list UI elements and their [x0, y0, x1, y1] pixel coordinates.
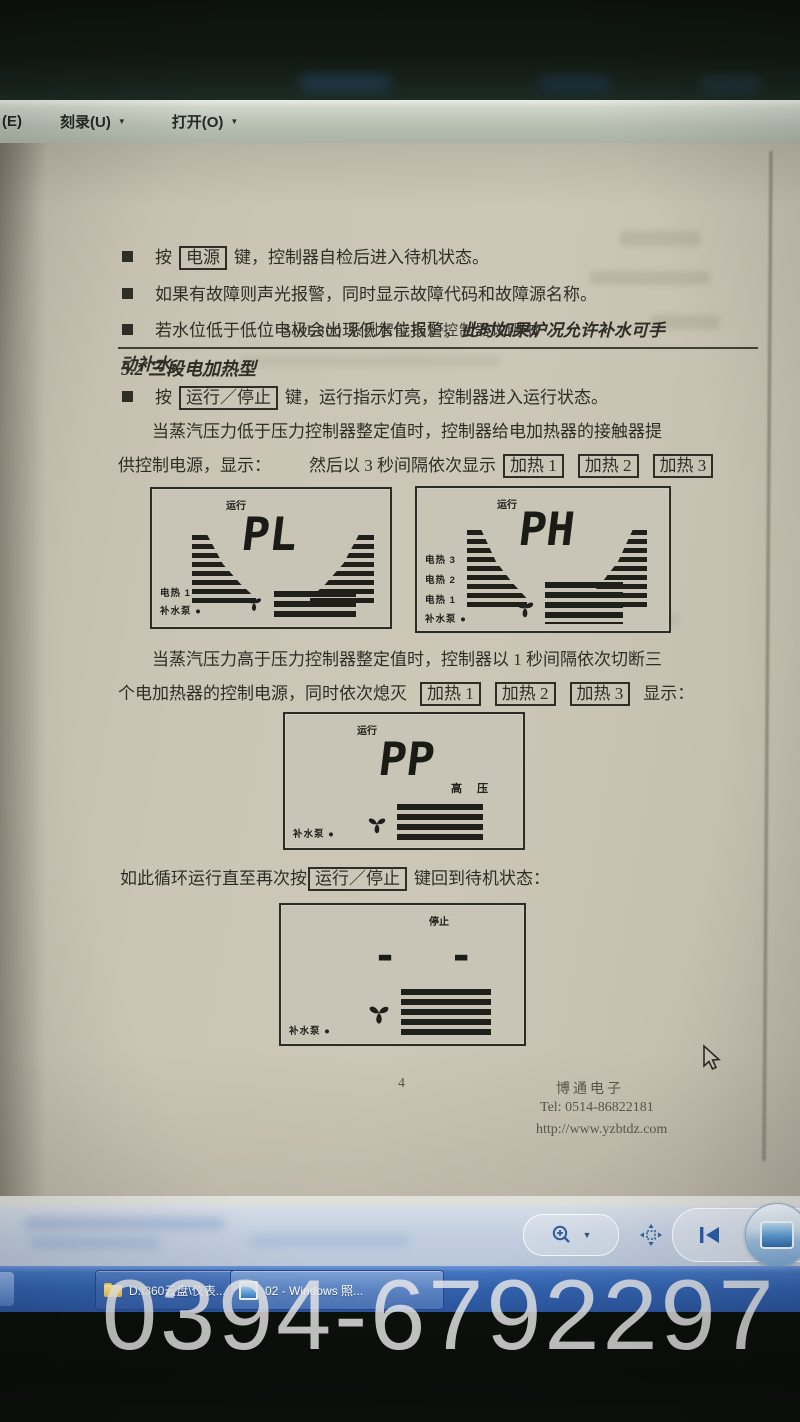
bullet-marker: [122, 324, 133, 335]
footer-url: http://www.yzbtdz.com: [536, 1122, 667, 1138]
fan-icon: [511, 594, 539, 622]
heater-element-icon: [545, 582, 623, 624]
paragraph-text: 显示：: [643, 684, 694, 703]
lcd-display-standby: 停止 - - 补水泵 ●: [279, 903, 526, 1046]
paragraph-text: 然后以 3 秒间隔依次显示: [309, 456, 496, 475]
zoom-control[interactable]: ▼: [523, 1214, 619, 1256]
lcd-value: PH: [516, 502, 578, 556]
heat3-label: 加热 3: [653, 454, 714, 478]
lcd-value: PP: [376, 732, 438, 786]
lcd-value: - -: [373, 933, 487, 979]
lcd-label-feed-pump: 补水泵 ●: [293, 826, 335, 840]
bullet-text: 键，控制器自检后进入待机状态。: [234, 248, 489, 267]
paragraph-text: 个电加热器的控制电源，同时依次熄灭: [118, 684, 407, 703]
bezel-reflection: [700, 76, 760, 92]
lcd-status-label: 运行: [226, 497, 246, 512]
lcd-label-high-pressure: 高 压: [451, 780, 494, 796]
document-page: SML800 系列智能锅炉控制器说明书 5.2 三段电加热型 按电源键，控制器自…: [0, 143, 800, 1196]
bullet-text-emphasis: 此时如果炉况允许补水可手: [461, 321, 665, 340]
watermark-phone-number: 0394-6792297: [102, 1258, 777, 1372]
lcd-status-label: 停止: [429, 913, 449, 928]
paragraph-line: 个电加热器的控制电源，同时依次熄灭加热 1加热 2加热 3显示：: [118, 679, 694, 706]
footer-company: 博通电子: [556, 1078, 624, 1098]
fit-to-window-icon: [639, 1223, 663, 1247]
lcd-display-pl: 运行 PL 电热 1 补水泵 ●: [150, 487, 392, 629]
chevron-down-icon: ▼: [118, 117, 126, 126]
taskbar-edge-button[interactable]: [0, 1272, 14, 1306]
menu-item-partial-e[interactable]: (E): [0, 109, 32, 134]
heater-element-icon: [397, 804, 483, 840]
title-rule: [118, 347, 758, 349]
bullet-text: 键，运行指示灯亮，控制器进入运行状态。: [285, 388, 608, 407]
menu-item-label: 刻录(U): [60, 111, 111, 132]
lcd-label-heater3: 电热 3: [425, 552, 456, 566]
bullet-line: 按运行／停止键，运行指示灯亮，控制器进入运行状态。: [122, 383, 608, 410]
toolbar-reflection: [30, 1238, 160, 1248]
bullet-line: 按电源键，控制器自检后进入待机状态。: [122, 243, 489, 270]
bleed-through: [620, 231, 700, 246]
lcd-label-feed-pump: 补水泵 ●: [425, 611, 467, 625]
bezel-reflection: [540, 76, 610, 92]
power-key-label: 电源: [179, 246, 227, 270]
fan-icon: [242, 591, 266, 615]
fan-icon: [363, 810, 391, 838]
bullet-text: 按: [155, 388, 172, 407]
nav-controls: [672, 1208, 800, 1262]
bezel-reflection: [300, 74, 390, 92]
previous-button[interactable]: [697, 1224, 723, 1246]
chevron-down-icon[interactable]: ▼: [583, 1230, 592, 1240]
heat1-label: 加热 1: [420, 682, 481, 706]
bullet-marker: [122, 251, 133, 262]
mouse-cursor-icon: [700, 1044, 724, 1072]
run-stop-key-label: 运行／停止: [179, 386, 278, 410]
slideshow-icon: [760, 1221, 794, 1249]
heat2-label: 加热 2: [495, 682, 556, 706]
fit-to-window-button[interactable]: [638, 1222, 664, 1248]
heater-element-icon: [401, 989, 491, 1037]
paragraph-line: 当蒸汽压力高于压力控制器整定值时，控制器以 1 秒间隔依次切断三: [152, 645, 662, 670]
bullet-text: 按: [155, 248, 172, 267]
heat3-label: 加热 3: [570, 682, 631, 706]
bullet-marker: [122, 288, 133, 299]
run-stop-key-label: 运行／停止: [308, 867, 407, 891]
lcd-label-feed-pump: 补水泵 ●: [160, 603, 202, 617]
menu-item-open[interactable]: 打开(O) ▼: [162, 107, 249, 136]
paragraph-line: 当蒸汽压力低于压力控制器整定值时，控制器给电加热器的接触器提: [152, 417, 662, 442]
menu-item-label: (E): [2, 113, 22, 130]
heat1-label: 加热 1: [503, 454, 564, 478]
footer-tel: Tel: 0514-86822181: [540, 1100, 654, 1116]
lcd-label-heater1: 电热 1: [160, 585, 191, 599]
monitor-top-bezel: [0, 0, 800, 100]
lcd-value: PL: [239, 507, 301, 561]
lcd-status-label: 运行: [357, 722, 377, 737]
paragraph-line: 如此循环运行直至再次按运行／停止键回到待机状态：: [120, 864, 550, 891]
lcd-display-ph: 运行 PH 电热 3 电热 2 电热 1 补水泵 ●: [415, 486, 671, 633]
page-left-shadow: [0, 143, 46, 1196]
menu-item-burn[interactable]: 刻录(U) ▼: [50, 107, 136, 136]
bullet-marker: [122, 391, 133, 402]
paragraph-text: 如此循环运行直至再次按: [120, 869, 307, 888]
paragraph-line: 供控制电源，显示：然后以 3 秒间隔依次显示加热 1加热 2加热 3: [118, 451, 720, 478]
heat2-label: 加热 2: [578, 454, 639, 478]
zoom-magnifier-icon[interactable]: [551, 1224, 573, 1246]
lcd-display-pp: 运行 PP 高 压 补水泵 ●: [283, 712, 525, 850]
lcd-status-label: 运行: [497, 496, 517, 511]
lcd-label-heater1: 电热 1: [425, 592, 456, 606]
bullet-line: 若水位低于低位电极会出现低水位报警，此时如果炉况允许补水可手: [122, 316, 665, 341]
fan-icon: [363, 997, 395, 1029]
toolbar-reflection: [24, 1218, 224, 1229]
heater-element-icon: [274, 591, 356, 617]
bleed-through: [240, 355, 500, 367]
window-menu-bar: (E) 刻录(U) ▼ 打开(O) ▼: [0, 100, 800, 144]
paragraph-text: 键回到待机状态：: [414, 869, 550, 888]
bullet-text: 若水位低于低位电极会出现低水位报警，: [155, 321, 461, 340]
lcd-label-heater2: 电热 2: [425, 572, 456, 586]
bullet-text: 如果有故障则声光报警，同时显示故障代码和故障源名称。: [155, 285, 597, 304]
bullet-line: 如果有故障则声光报警，同时显示故障代码和故障源名称。: [122, 280, 597, 305]
bullet-line-continued: 动补水。: [120, 350, 188, 375]
toolbar-reflection: [250, 1236, 410, 1246]
previous-icon: [697, 1224, 723, 1246]
menu-item-label: 打开(O): [172, 111, 224, 132]
chevron-down-icon: ▼: [230, 117, 238, 126]
lcd-label-feed-pump: 补水泵 ●: [289, 1023, 331, 1037]
page-number: 4: [398, 1076, 405, 1092]
paragraph-text: 供控制电源，显示：: [118, 456, 271, 475]
photo-of-monitor: (E) 刻录(U) ▼ 打开(O) ▼ SML800 系列智能锅炉控制器说明书 …: [0, 0, 800, 1422]
bleed-through: [590, 271, 710, 285]
